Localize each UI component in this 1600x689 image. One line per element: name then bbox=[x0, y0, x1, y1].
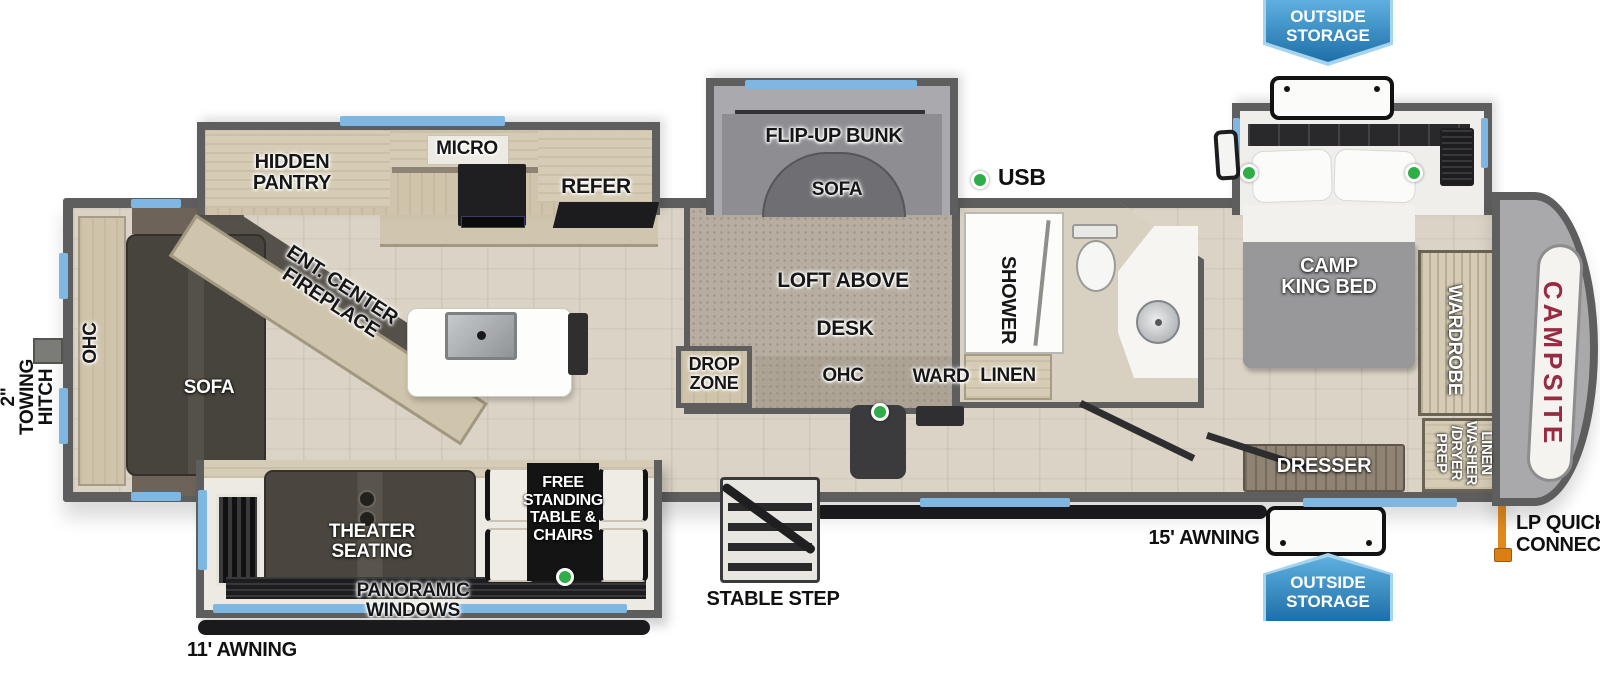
outside-storage-banner-top: OUTSIDE STORAGE bbox=[1263, 0, 1393, 66]
outside-storage-bottom-label: OUTSIDE STORAGE bbox=[1263, 553, 1393, 621]
refer-label: REFER bbox=[556, 176, 636, 198]
desk-label: DESK bbox=[795, 318, 895, 342]
outside-storage-top-label: OUTSIDE STORAGE bbox=[1263, 0, 1393, 66]
outside-storage-banner-bottom: OUTSIDE STORAGE bbox=[1263, 553, 1393, 621]
hidden-pantry-label: HIDDEN PANTRY bbox=[222, 152, 362, 196]
bed-slide-window-accent-right bbox=[1481, 118, 1488, 168]
dresser-label: DRESSER bbox=[1264, 456, 1384, 480]
usb-indicator-bed-right bbox=[1405, 164, 1423, 182]
awning-15-bar bbox=[815, 505, 1267, 519]
towing-hitch-label: 2" TOWING HITCH bbox=[0, 337, 57, 457]
rear-bottom-window bbox=[131, 492, 181, 501]
lp-quick-connect-label: LP QUICK CONNECT bbox=[1516, 512, 1600, 558]
dining-chair-4 bbox=[598, 528, 648, 582]
camp-king-bed-label: CAMP KING BED bbox=[1259, 256, 1399, 300]
step-tread-4 bbox=[728, 563, 812, 571]
door-rivet bbox=[1366, 540, 1372, 546]
brand-logo: CAMPSITE bbox=[1540, 254, 1566, 474]
outside-storage-door-bottom bbox=[1266, 506, 1386, 556]
bench-below-ward bbox=[916, 406, 964, 426]
outside-storage-door-top bbox=[1270, 76, 1394, 120]
rear-top-window bbox=[131, 199, 181, 208]
bedroom-vent bbox=[1440, 128, 1474, 186]
bedroom-window bbox=[1213, 129, 1240, 181]
vanity-sink-drain bbox=[1155, 319, 1162, 326]
bottom-wall-window-1 bbox=[920, 498, 1070, 507]
kitchen-slide-window bbox=[340, 116, 505, 126]
loft-above-label: LOFT ABOVE bbox=[763, 270, 923, 294]
bath-linen-label: LINEN bbox=[968, 366, 1048, 388]
rear-ohc-label: OHC bbox=[81, 303, 107, 383]
flip-up-bunk-label: FLIP-UP BUNK bbox=[764, 126, 904, 148]
toilet-tank bbox=[1072, 224, 1118, 239]
usb-indicator-table bbox=[556, 568, 574, 586]
linen-washer-dryer-label: LINEN WASHER /DRYER PREP bbox=[1434, 403, 1494, 503]
pillow-left bbox=[1251, 149, 1333, 204]
wardrobe-label: WARDROBE bbox=[1440, 275, 1464, 405]
panoramic-windows-label: PANORAMIC WINDOWS bbox=[318, 581, 508, 605]
usb-label: USB bbox=[998, 166, 1058, 192]
lp-connector bbox=[1494, 548, 1512, 562]
usb-indicator-legend bbox=[971, 171, 989, 189]
rear-window-upper bbox=[59, 253, 68, 299]
bunk-slide-window bbox=[745, 80, 917, 89]
dining-chair-3 bbox=[598, 468, 648, 522]
refer-front-panel bbox=[553, 202, 659, 228]
stove-burner-strip bbox=[461, 216, 525, 228]
stable-step-label: STABLE STEP bbox=[703, 589, 843, 613]
free-standing-table-label: FREE STANDING TABLE & CHAIRS bbox=[523, 474, 603, 554]
rear-sofa-label: SOFA bbox=[169, 378, 249, 402]
usb-indicator-bed-left bbox=[1240, 164, 1258, 182]
headboard-slats bbox=[1248, 124, 1470, 146]
bunk-sofa-label: SOFA bbox=[797, 180, 877, 202]
bed-mattress bbox=[1243, 205, 1415, 247]
micro-label: MICRO bbox=[427, 139, 507, 161]
awning-11-label: 11' AWNING bbox=[187, 640, 317, 664]
floorplan-canvas: CAMPSITE OHC SOFA 2" TOWING HITCH HIDDEN… bbox=[0, 0, 1600, 689]
door-rivet bbox=[1284, 86, 1290, 92]
theater-seating-label: THEATER SEATING bbox=[292, 522, 452, 546]
awning-11-bar bbox=[198, 620, 650, 635]
slide-fireplace bbox=[216, 494, 260, 586]
desk-ohc-label: OHC bbox=[803, 366, 883, 388]
theater-slide-window-left bbox=[198, 490, 207, 570]
pillow-right bbox=[1333, 149, 1417, 204]
awning-15-label: 15' AWNING bbox=[1144, 528, 1264, 552]
cupholder-1 bbox=[358, 490, 376, 508]
door-rivet bbox=[1280, 540, 1286, 546]
rear-window-lower bbox=[59, 388, 68, 444]
drop-zone-label: DROP ZONE bbox=[678, 355, 750, 397]
toilet-bowl bbox=[1076, 240, 1116, 292]
shower-label: SHOWER bbox=[994, 240, 1018, 360]
sink-drain bbox=[477, 331, 486, 340]
island-dishwasher bbox=[568, 313, 588, 375]
door-rivet bbox=[1374, 86, 1380, 92]
theater-slide-window-2 bbox=[437, 604, 627, 613]
usb-indicator-desk bbox=[871, 403, 889, 421]
